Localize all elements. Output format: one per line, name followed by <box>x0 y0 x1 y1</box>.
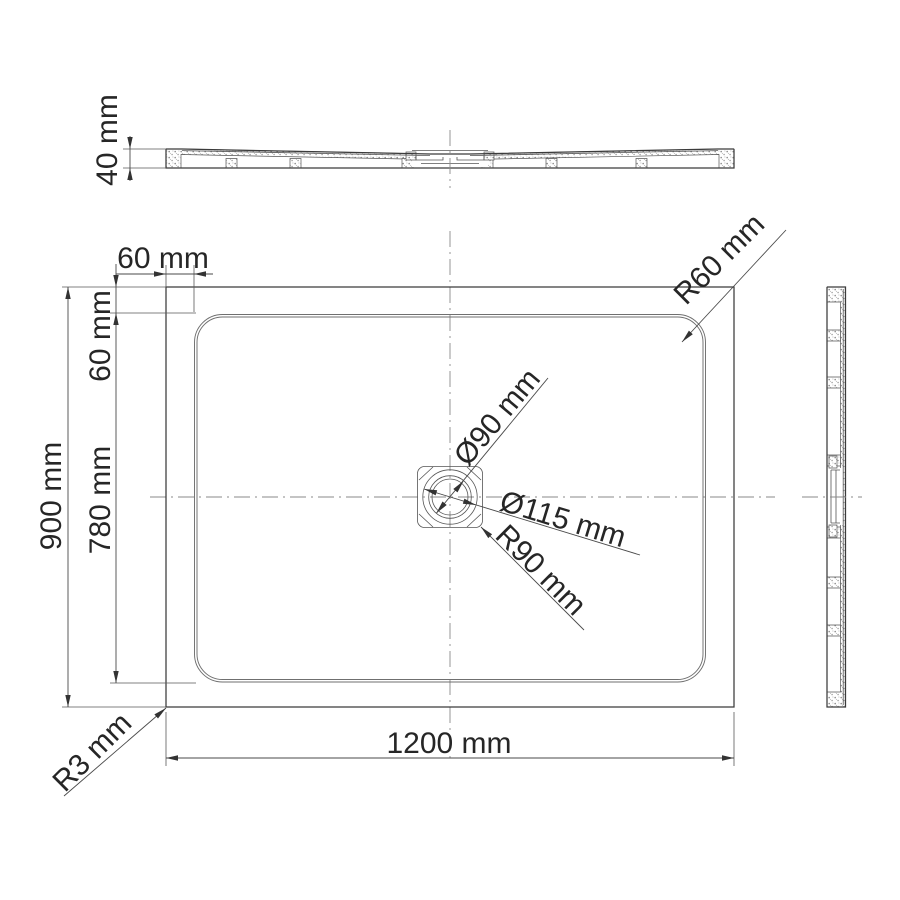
extension-lines <box>123 149 166 168</box>
shower-tray-dimension-drawing: 40 mm Ø90 mm Ø115 mm <box>0 0 900 900</box>
dimension-label-overall-depth: 900 mm <box>35 442 68 550</box>
dimension-label-rim-inset-horizontal: 60 mm <box>117 242 209 275</box>
dimension-label-outer-corner-radius: R3 mm <box>47 707 139 799</box>
drain-recess-clear <box>828 468 844 525</box>
dimension-40mm: 40 mm <box>91 94 166 186</box>
dimension-label-rim-inset-vertical: 60 mm <box>84 290 117 382</box>
dimension-label-drain-inner-diameter: Ø90 mm <box>448 363 547 472</box>
side-profile-view <box>802 287 862 707</box>
dimension-corner-r3: R3 mm <box>47 707 166 799</box>
dimension-label-basin-depth: 780 mm <box>84 446 117 554</box>
plan-view: Ø90 mm Ø115 mm R90 mm R60 mm R3 mm <box>35 208 786 799</box>
technical-drawing-canvas: 40 mm Ø90 mm Ø115 mm <box>0 0 900 900</box>
plan-dimension-lines <box>68 264 734 758</box>
dimension-label-profile-height: 40 mm <box>91 94 124 186</box>
dimension-label-overall-width: 1200 mm <box>386 727 511 760</box>
top-profile-view: 40 mm <box>91 94 734 188</box>
dimension-drain-d90: Ø90 mm <box>436 363 548 514</box>
dimension-corner-r60: R60 mm <box>668 208 786 342</box>
dimension-label-basin-corner-radius: R60 mm <box>668 208 771 311</box>
plan-extension-lines <box>62 265 734 766</box>
